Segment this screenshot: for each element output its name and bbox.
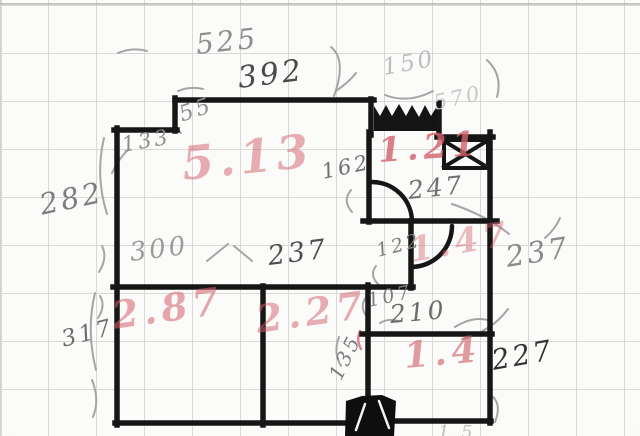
room-area-label: 5.13: [179, 126, 315, 188]
floorplan-canvas: 5253925513315057028216224712223730023710…: [0, 0, 640, 436]
dimension-label: 210: [389, 297, 448, 328]
dimension-label: 133: [120, 126, 172, 156]
dimension-label: 282: [37, 177, 106, 220]
dimension-label: 162: [320, 151, 373, 183]
dimension-label: 227: [489, 335, 556, 375]
room-area-label: 1.47: [407, 216, 514, 269]
dimension-label: 247: [407, 172, 466, 204]
room-area-label: 1.21: [377, 127, 482, 170]
labels-layer: 5253925513315057028216224712223730023710…: [0, 0, 640, 436]
dimension-label: 317: [59, 316, 116, 352]
room-area-label: 1.4: [402, 331, 483, 375]
dimension-label: 570: [432, 82, 485, 114]
dimension-label: 55: [176, 94, 215, 126]
room-area-label: 2.27: [253, 285, 370, 340]
dimension-label: 392: [236, 55, 306, 94]
dimension-label: 525: [194, 24, 259, 60]
dimension-label: 300: [128, 233, 190, 267]
dimension-label: 135: [326, 331, 366, 383]
dimension-label: 1.5: [438, 424, 476, 436]
dimension-label: 150: [381, 47, 437, 80]
room-area-label: 2.87: [109, 281, 226, 336]
dimension-label: 237: [266, 236, 330, 272]
